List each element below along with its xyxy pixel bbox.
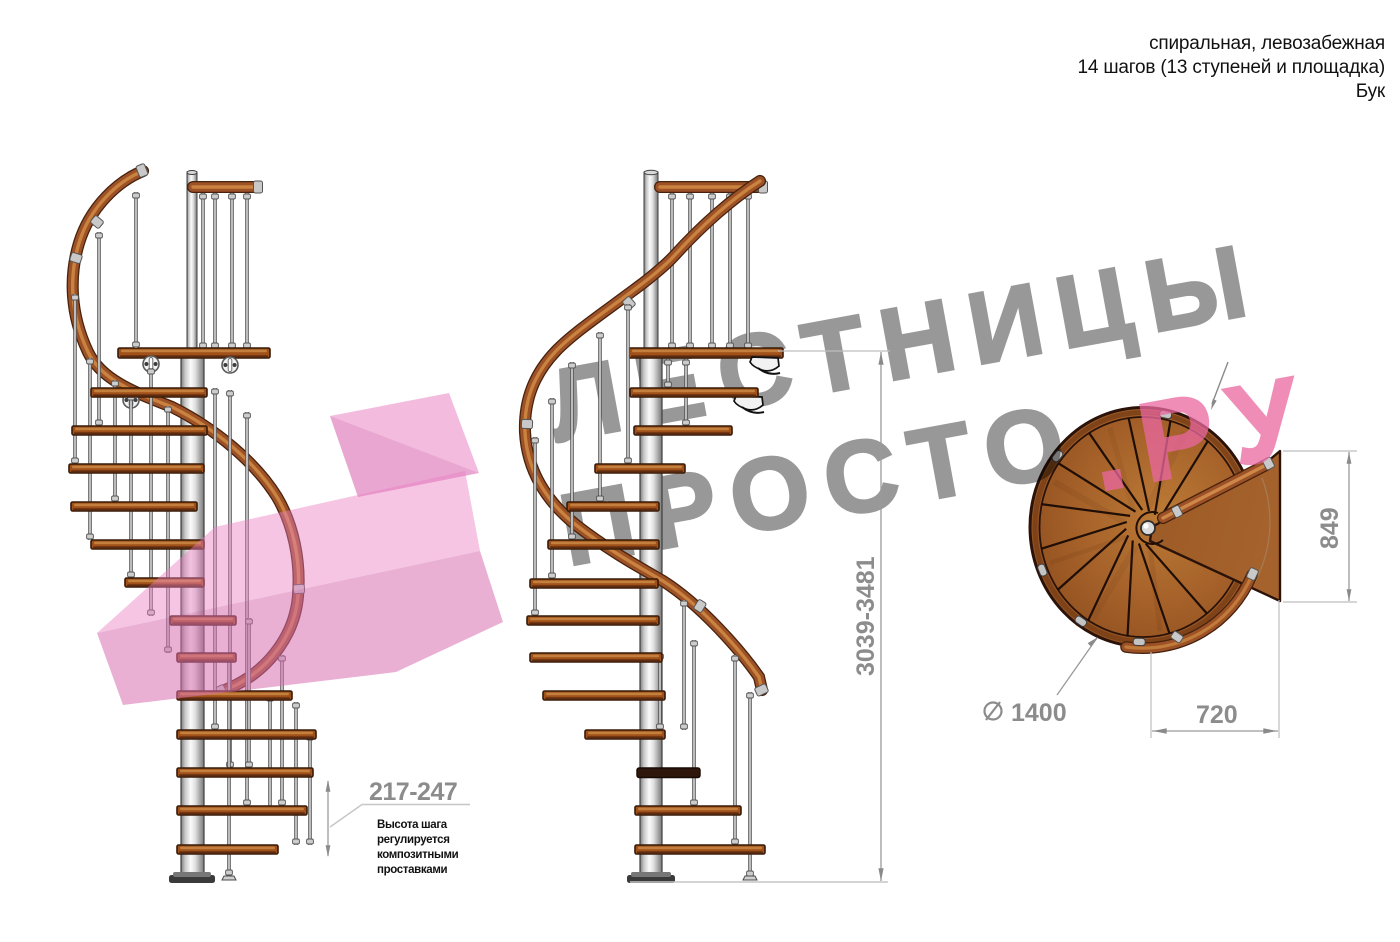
svg-text:Бук: Бук bbox=[1356, 81, 1386, 102]
svg-text:849: 849 bbox=[1316, 507, 1344, 549]
svg-text:14 шагов (13 ступеней и площад: 14 шагов (13 ступеней и площадка) bbox=[1078, 57, 1386, 78]
svg-text:спиральная, левозабежная: спиральная, левозабежная bbox=[1149, 33, 1385, 54]
svg-text:720: 720 bbox=[1196, 701, 1238, 729]
svg-text:1400: 1400 bbox=[1011, 699, 1067, 727]
svg-text:217-247: 217-247 bbox=[369, 778, 457, 806]
svg-text:3039-3481: 3039-3481 bbox=[852, 556, 880, 676]
